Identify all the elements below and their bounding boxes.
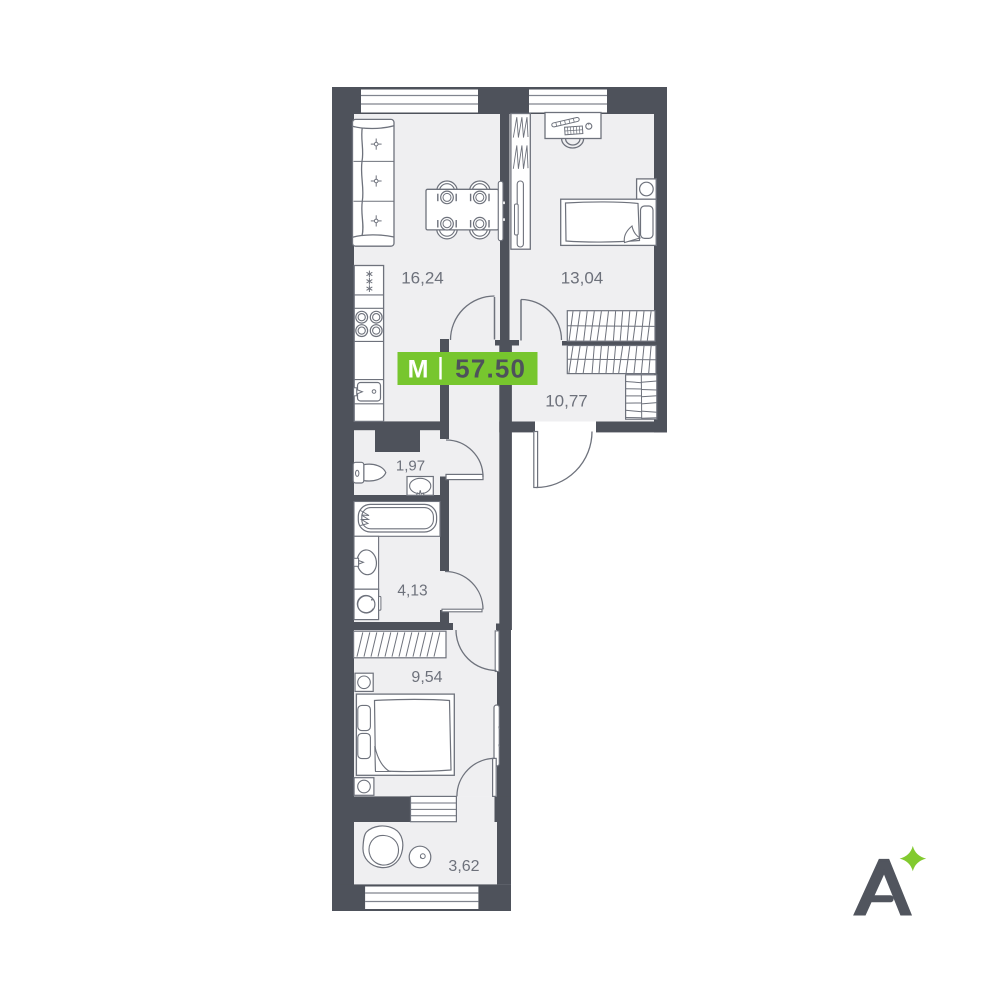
svg-text:16,24: 16,24 (401, 269, 444, 288)
svg-text:M: M (408, 356, 429, 384)
svg-text:4,13: 4,13 (397, 583, 427, 600)
svg-text:1,97: 1,97 (396, 458, 425, 475)
svg-text:13,04: 13,04 (561, 269, 604, 288)
svg-text:3,62: 3,62 (448, 858, 479, 875)
svg-text:9,54: 9,54 (411, 669, 442, 686)
svg-text:10,77: 10,77 (545, 392, 588, 411)
svg-text:57.50: 57.50 (455, 354, 526, 384)
